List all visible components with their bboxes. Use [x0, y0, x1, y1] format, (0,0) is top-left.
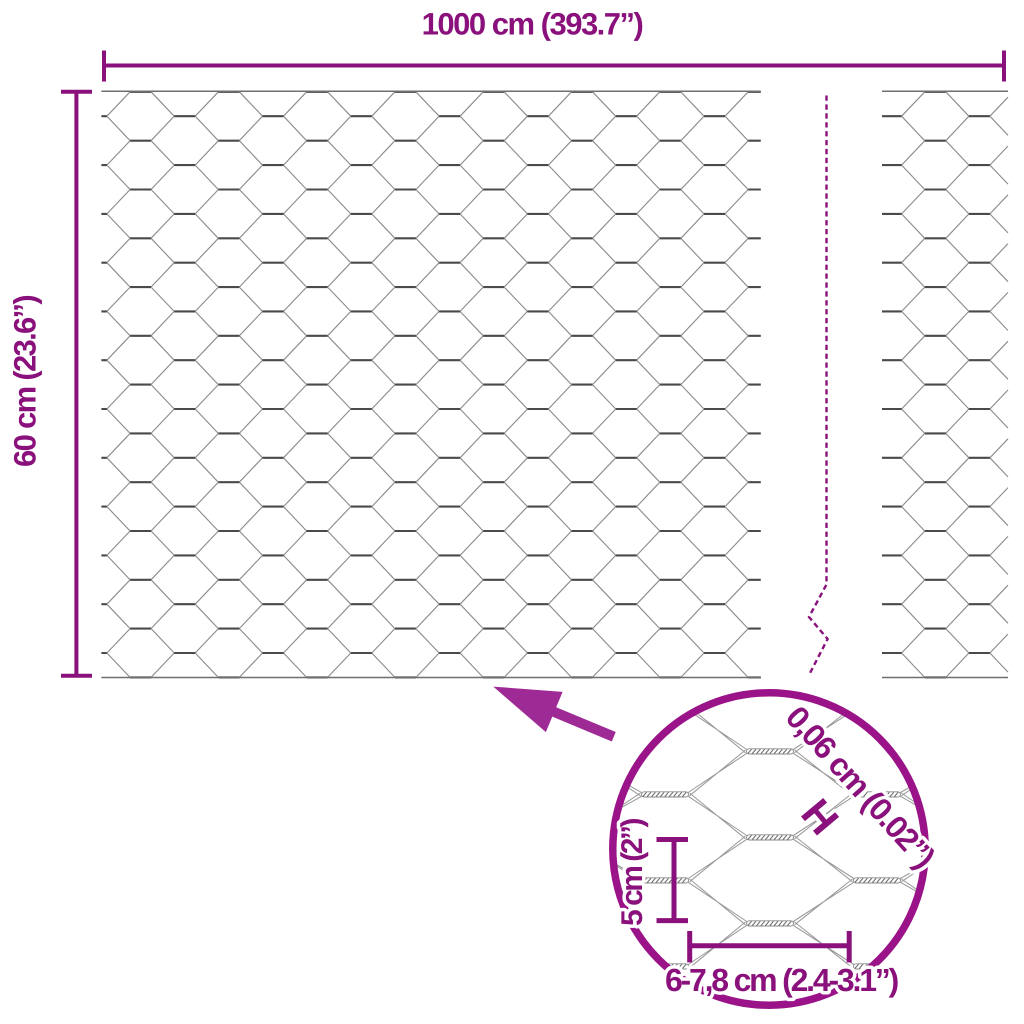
svg-text:60 cm (23.6”): 60 cm (23.6”) — [8, 296, 43, 467]
svg-text:6-7,8 cm (2.4-3.1”): 6-7,8 cm (2.4-3.1”) — [665, 962, 899, 998]
svg-text:5 cm (2”): 5 cm (2”) — [616, 819, 649, 926]
svg-text:1000 cm (393.7”): 1000 cm (393.7”) — [422, 7, 643, 42]
